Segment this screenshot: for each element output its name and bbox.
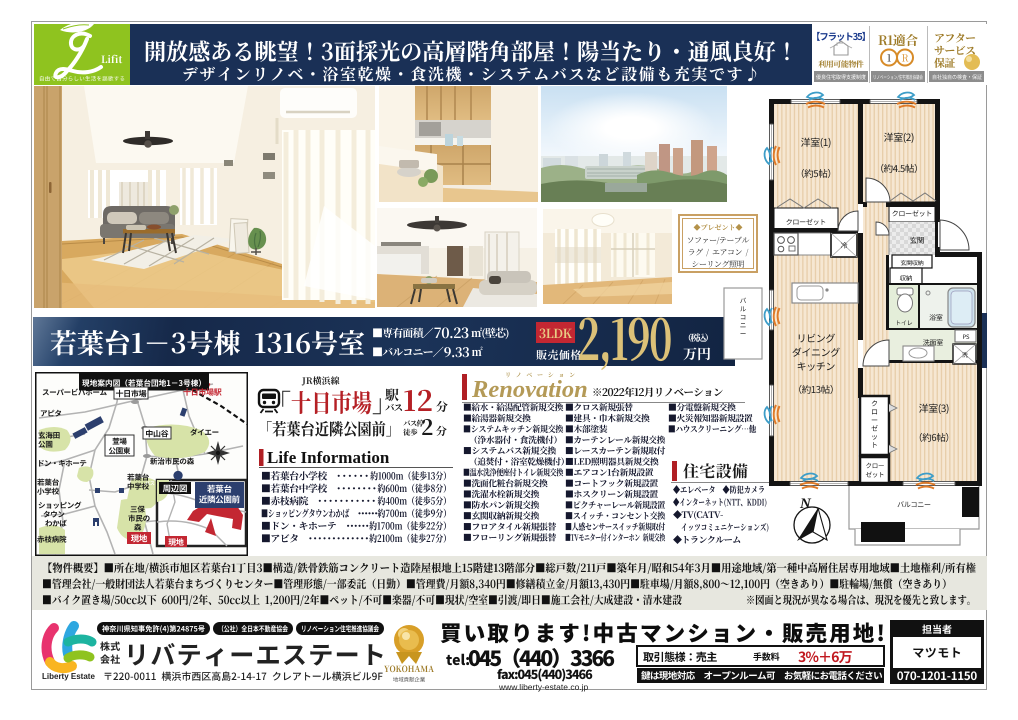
svg-text:Renovation: Renovation: [471, 376, 588, 403]
svg-text:N: N: [799, 496, 812, 512]
svg-text:www.liberty-estate.co.jp: www.liberty-estate.co.jp: [498, 682, 589, 692]
svg-text:Life Information: Life Information: [267, 448, 390, 467]
svg-text:Liberty Estate: Liberty Estate: [42, 672, 95, 681]
